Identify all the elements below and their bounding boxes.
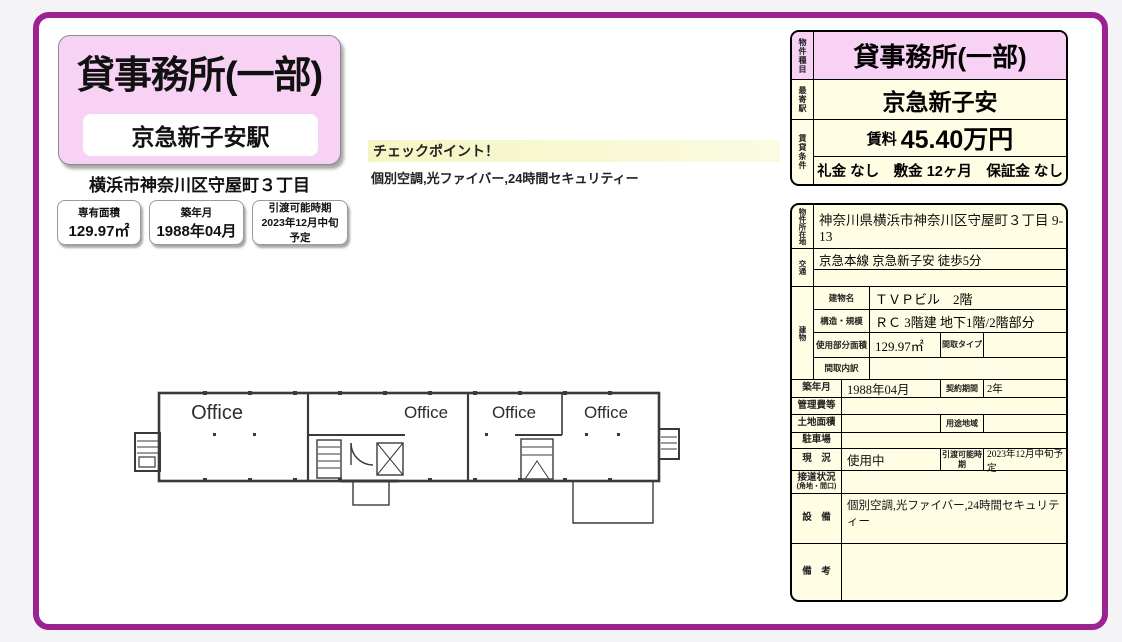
summary-terms-block: 賃料 45.40万円 礼金 なし 敷金 12ヶ月 保証金 なし	[814, 120, 1066, 184]
summary-terms-label: 賃貸条件	[792, 120, 814, 184]
built-value: 1988年04月	[842, 380, 940, 397]
summary-rent: 賃料 45.40万円	[814, 120, 1066, 157]
access-label: 交通	[792, 249, 814, 286]
summary-badges: 専有面積 129.97㎡ 築年月 1988年04月 引渡可能時期 2023年12…	[57, 200, 348, 245]
building-area-row: 使用部分面積 129.97㎡ 間取タイプ	[814, 333, 1066, 358]
detail-row-equipment: 設 備 個別空調,光ファイバー,24時間セキュリティー	[792, 494, 1066, 544]
building-layout-row: 間取内訳	[814, 358, 1066, 379]
station-name-box: 京急新子安駅	[83, 114, 318, 156]
management-value	[842, 398, 1066, 414]
access-value-2	[814, 270, 1066, 286]
road-access-value	[842, 471, 1066, 493]
management-label: 管理費等	[792, 398, 842, 414]
badge-area-value: 129.97㎡	[62, 220, 136, 241]
property-title-box: 貸事務所(一部) 京急新子安駅	[58, 35, 341, 165]
floorplan-drawing: Office Office Office Office	[125, 385, 685, 530]
equipment-value: 個別空調,光ファイバー,24時間セキュリティー	[842, 494, 1066, 543]
detail-row-land: 土地面積 用途地域	[792, 415, 1066, 433]
road-access-label-sub: (角地・間口)	[797, 483, 837, 491]
building-structure-row: 構造・規模 ＲＣ 3階建 地下1階/2階部分	[814, 310, 1066, 333]
equipment-label: 設 備	[792, 494, 842, 543]
summary-table: 物件種目 貸事務所(一部) 最寄駅 京急新子安 賃貸条件 賃料 45.40万円 …	[790, 30, 1068, 186]
checkpoint-features: 個別空調,光ファイバー,24時間セキュリティー	[371, 168, 791, 187]
deposit-terms: 礼金 なし 敷金 12ヶ月 保証金 なし	[814, 157, 1066, 184]
detail-row-remarks: 備 考	[792, 544, 1066, 600]
contract-term-value: 2年	[984, 380, 1066, 397]
building-name-row: 建物名 ＴＶＰビル 2階	[814, 287, 1066, 310]
layout-detail-value	[870, 358, 1066, 379]
property-type-title: 貸事務所(一部)	[59, 44, 340, 99]
building-area-label: 使用部分面積	[814, 333, 870, 357]
detail-row-access: 交通 京急本線 京急新子安 徒歩5分	[792, 249, 1066, 287]
floorplan-room-label-2: Office	[404, 403, 448, 422]
station-name: 京急新子安駅	[132, 118, 270, 152]
layout-detail-label: 間取内訳	[814, 358, 870, 379]
location-value: 神奈川県横浜市神奈川区守屋町３丁目 9-13	[814, 205, 1066, 248]
road-access-label-main: 接道状況	[797, 473, 835, 484]
summary-station-value: 京急新子安	[814, 80, 1066, 119]
building-label: 建物	[792, 287, 814, 379]
remarks-label: 備 考	[792, 544, 842, 600]
detail-row-location: 物件所在地 神奈川県横浜市神奈川区守屋町３丁目 9-13	[792, 205, 1066, 249]
status-label: 現 況	[792, 449, 842, 470]
road-access-label: 接道状況 (角地・間口)	[792, 471, 842, 493]
zoning-value	[984, 415, 1066, 432]
rent-value: 45.40万円	[901, 120, 1014, 156]
floorplan-svg: Office Office Office Office	[125, 385, 685, 530]
building-structure-label: 構造・規模	[814, 310, 870, 332]
badge-handover-value: 2023年12月中旬予定	[257, 215, 343, 245]
checkpoint-title: チェックポイント！	[373, 141, 499, 161]
badge-handover: 引渡可能時期 2023年12月中旬予定	[252, 200, 348, 245]
summary-type-label: 物件種目	[792, 32, 814, 79]
checkpoint-header: チェックポイント！	[368, 140, 780, 162]
floorplan-room-label-4: Office	[584, 403, 628, 422]
access-value: 京急本線 京急新子安 徒歩5分	[814, 249, 1066, 270]
building-name-label: 建物名	[814, 287, 870, 309]
detail-row-status: 現 況 使用中 引渡可能時期 2023年12月中旬予定	[792, 449, 1066, 471]
summary-type-value: 貸事務所(一部)	[814, 32, 1066, 79]
detail-row-management: 管理費等	[792, 398, 1066, 415]
floorplan-room-label-3: Office	[492, 403, 536, 422]
location-label: 物件所在地	[792, 205, 814, 248]
badge-built-label: 築年月	[154, 205, 239, 220]
handover-value: 2023年12月中旬予定	[984, 449, 1066, 470]
land-area-value	[842, 415, 940, 432]
badge-area-label: 専有面積	[62, 205, 136, 220]
detail-table: 物件所在地 神奈川県横浜市神奈川区守屋町３丁目 9-13 交通 京急本線 京急新…	[790, 203, 1068, 602]
layout-type-value	[984, 333, 1066, 357]
badge-built-value: 1988年04月	[154, 220, 239, 241]
detail-row-road: 接道状況 (角地・間口)	[792, 471, 1066, 494]
floorplan-room-label-1: Office	[191, 402, 243, 424]
layout-type-label: 間取タイプ	[940, 333, 984, 357]
building-area-value: 129.97㎡	[870, 333, 940, 357]
badge-built: 築年月 1988年04月	[149, 200, 244, 245]
detail-row-building: 建物 建物名 ＴＶＰビル 2階 構造・規模 ＲＣ 3階建 地下1階/2階部分 使…	[792, 287, 1066, 380]
flyer-sheet: 貸事務所(一部) 京急新子安駅 横浜市神奈川区守屋町３丁目 専有面積 129.9…	[33, 12, 1108, 630]
summary-row-type: 物件種目 貸事務所(一部)	[792, 32, 1066, 80]
summary-station-label: 最寄駅	[792, 80, 814, 119]
badge-handover-label: 引渡可能時期	[257, 200, 343, 215]
summary-row-station: 最寄駅 京急新子安	[792, 80, 1066, 120]
building-rows: 建物名 ＴＶＰビル 2階 構造・規模 ＲＣ 3階建 地下1階/2階部分 使用部分…	[814, 287, 1066, 379]
property-address: 横浜市神奈川区守屋町３丁目	[58, 171, 341, 196]
badge-area: 専有面積 129.97㎡	[57, 200, 141, 245]
detail-row-built: 築年月 1988年04月 契約期間 2年	[792, 380, 1066, 398]
contract-term-label: 契約期間	[940, 380, 984, 397]
remarks-value	[842, 544, 1066, 600]
summary-row-terms: 賃貸条件 賃料 45.40万円 礼金 なし 敷金 12ヶ月 保証金 なし	[792, 120, 1066, 184]
parking-label: 駐車場	[792, 433, 842, 448]
land-area-label: 土地面積	[792, 415, 842, 432]
building-name-value: ＴＶＰビル 2階	[870, 287, 1066, 309]
handover-label: 引渡可能時期	[940, 449, 984, 470]
built-label: 築年月	[792, 380, 842, 397]
access-lines: 京急本線 京急新子安 徒歩5分	[814, 249, 1066, 286]
status-value: 使用中	[842, 449, 940, 470]
zoning-label: 用途地域	[940, 415, 984, 432]
rent-label: 賃料	[867, 128, 897, 149]
building-structure-value: ＲＣ 3階建 地下1階/2階部分	[870, 310, 1066, 332]
